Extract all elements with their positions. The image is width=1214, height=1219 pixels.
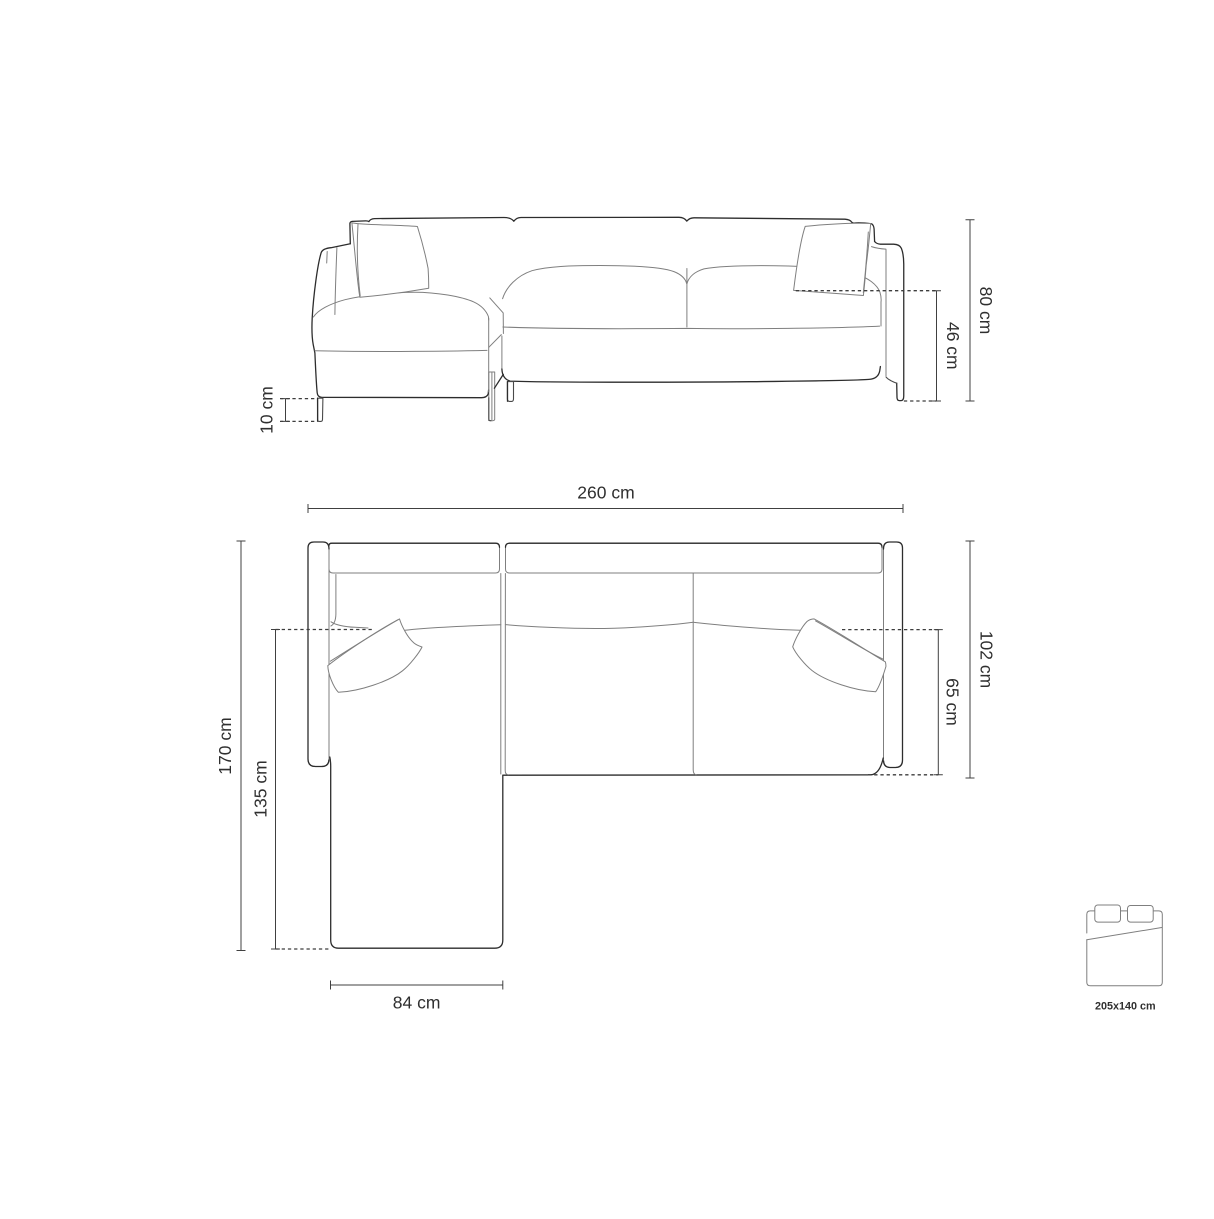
svg-text:205x140 cm: 205x140 cm: [1095, 1000, 1156, 1012]
svg-text:84 cm: 84 cm: [393, 993, 441, 1013]
svg-text:65 cm: 65 cm: [943, 678, 963, 726]
svg-text:46 cm: 46 cm: [943, 322, 963, 370]
svg-text:260 cm: 260 cm: [577, 483, 634, 503]
svg-text:135 cm: 135 cm: [251, 760, 271, 817]
svg-text:10 cm: 10 cm: [257, 386, 277, 434]
svg-text:102 cm: 102 cm: [977, 631, 997, 688]
svg-text:80 cm: 80 cm: [976, 287, 996, 335]
svg-text:170 cm: 170 cm: [215, 717, 235, 774]
